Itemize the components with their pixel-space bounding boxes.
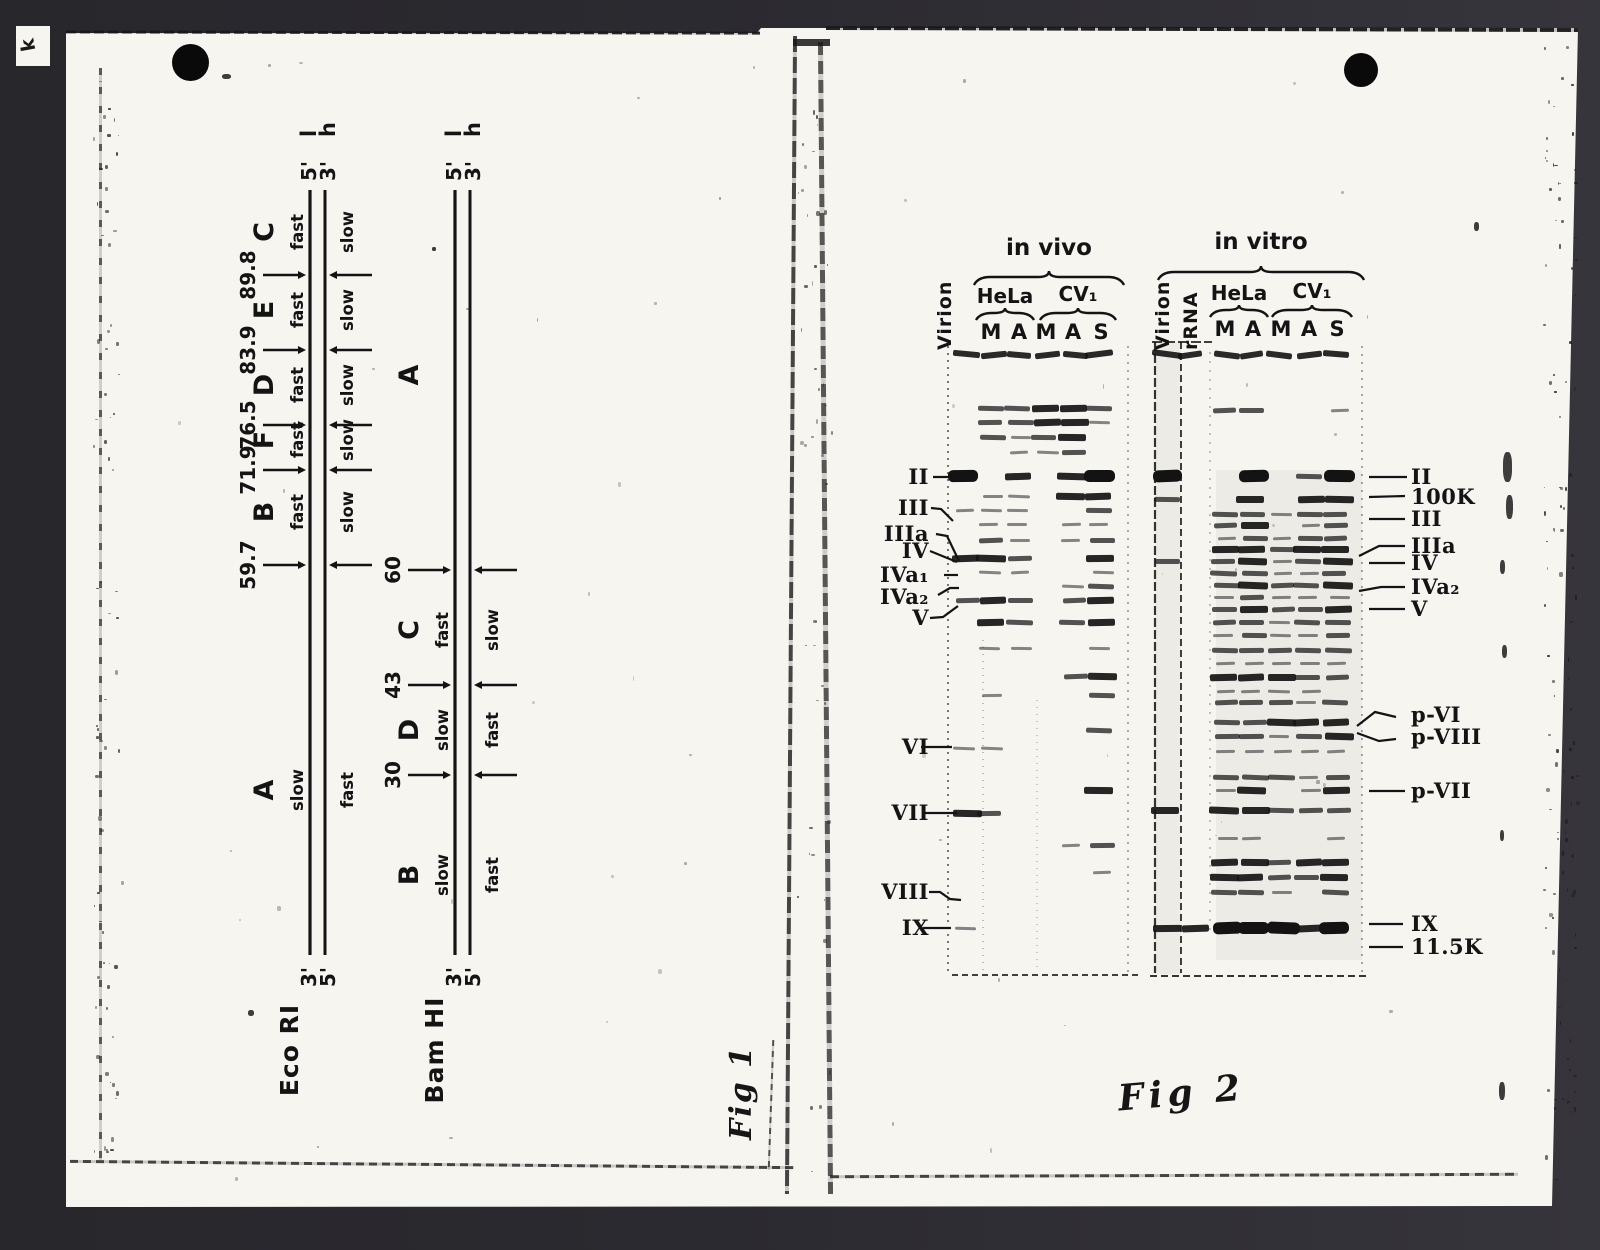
noise-speck xyxy=(825,483,828,485)
noise-speck xyxy=(1574,1091,1576,1092)
noise-speck xyxy=(1565,838,1568,842)
noise-speck xyxy=(1293,82,1296,85)
noise-speck xyxy=(818,388,820,391)
noise-speck xyxy=(105,1072,109,1076)
fragment-letter: B xyxy=(249,502,280,523)
noise-speck xyxy=(1565,487,1567,491)
noise-speck xyxy=(1574,182,1578,184)
strand-direction-label: fast xyxy=(288,422,307,458)
noise-speck xyxy=(816,700,819,701)
noise-speck xyxy=(892,1122,894,1126)
noise-speck xyxy=(1567,1102,1568,1104)
noise-speck xyxy=(93,137,95,141)
strand-direction-label: slow xyxy=(338,364,357,406)
noise-speck xyxy=(1341,191,1344,194)
fragment-letter: F xyxy=(249,431,280,449)
noise-speck xyxy=(1546,788,1549,793)
noise-speck xyxy=(100,829,103,831)
noise-speck xyxy=(104,746,107,750)
noise-speck xyxy=(811,1171,813,1172)
strand-direction-label: fast xyxy=(288,494,307,530)
ink-blotch xyxy=(1500,560,1505,574)
noise-speck xyxy=(1575,259,1579,261)
noise-speck xyxy=(1569,341,1572,345)
cut-position-number: 59.7 xyxy=(236,540,260,589)
noise-speck xyxy=(103,115,106,119)
noise-speck xyxy=(1559,183,1561,184)
noise-speck xyxy=(823,383,824,386)
noise-speck xyxy=(1556,749,1559,753)
noise-speck xyxy=(1571,267,1573,270)
noise-speck xyxy=(108,243,112,247)
noise-speck xyxy=(1559,416,1560,419)
ink-blotch xyxy=(1503,452,1512,482)
noise-speck xyxy=(98,816,102,821)
strand-direction-label: slow xyxy=(338,419,357,461)
cut-arrowhead-up xyxy=(329,346,337,354)
noise-speck xyxy=(963,79,966,83)
cut-arrowhead-down xyxy=(298,346,306,354)
noise-speck xyxy=(1544,47,1546,50)
strand-direction-label: slow xyxy=(433,709,452,751)
noise-speck xyxy=(813,110,815,115)
enzyme-label: Eco RI xyxy=(275,1004,304,1096)
noise-speck xyxy=(1367,315,1369,319)
ink-blotch xyxy=(1506,495,1513,519)
noise-speck xyxy=(804,444,807,447)
noise-speck xyxy=(814,265,817,268)
noise-speck xyxy=(1560,1021,1561,1025)
noise-speck xyxy=(1544,487,1545,488)
fragment-letter: D xyxy=(249,374,280,396)
noise-speck xyxy=(97,976,100,979)
noise-speck xyxy=(1561,220,1564,223)
fragment-letter: E xyxy=(249,301,280,319)
noise-speck xyxy=(106,1149,108,1151)
noise-speck xyxy=(449,1137,453,1140)
noise-speck xyxy=(104,393,107,396)
noise-speck xyxy=(1555,762,1558,767)
fragment-letter: A xyxy=(394,364,425,385)
noise-speck xyxy=(658,969,662,974)
noise-speck xyxy=(1571,776,1574,779)
noise-speck xyxy=(1571,554,1574,558)
noise-speck xyxy=(1571,894,1574,897)
strand-direction-label: fast xyxy=(483,857,502,893)
noise-speck xyxy=(1549,188,1552,191)
noise-speck xyxy=(105,187,108,191)
noise-speck xyxy=(116,1091,119,1096)
noise-speck xyxy=(1569,473,1572,477)
ink-blotch xyxy=(1499,1082,1505,1100)
cut-arrowhead-down xyxy=(443,566,451,574)
noise-speck xyxy=(809,827,813,830)
ink-blotch xyxy=(248,1010,254,1016)
noise-speck xyxy=(1571,84,1574,86)
noise-speck xyxy=(1215,835,1217,837)
noise-speck xyxy=(116,342,119,345)
noise-speck xyxy=(813,645,816,646)
noise-speck xyxy=(1570,708,1572,711)
end-label: 5' xyxy=(461,967,485,987)
cut-arrowhead-down xyxy=(298,561,306,569)
noise-speck xyxy=(107,985,110,989)
noise-speck xyxy=(1554,1107,1556,1110)
noise-speck xyxy=(1562,871,1564,875)
noise-speck xyxy=(1561,77,1564,79)
ecori-map: Eco RI3'5'5'3'lh59.771.976.583.989.8Aslo… xyxy=(236,122,372,1096)
noise-speck xyxy=(816,419,818,424)
noise-speck xyxy=(283,489,285,493)
noise-speck xyxy=(1569,1069,1571,1071)
noise-speck xyxy=(121,881,124,885)
noise-speck xyxy=(719,197,721,200)
cut-position-number: 43 xyxy=(381,671,405,699)
noise-speck xyxy=(1568,677,1571,679)
noise-speck xyxy=(1573,1075,1577,1077)
noise-speck xyxy=(814,368,817,370)
noise-speck xyxy=(1554,391,1557,392)
noise-speck xyxy=(105,210,108,213)
strand-name-label: h xyxy=(316,122,340,137)
noise-speck xyxy=(802,143,804,146)
cut-arrowhead-up xyxy=(474,771,482,779)
noise-speck xyxy=(922,753,926,758)
ink-blotch xyxy=(1500,830,1504,841)
noise-speck xyxy=(178,421,181,425)
figure-1-caption: Fig 1 xyxy=(724,1045,759,1140)
noise-speck xyxy=(110,324,112,328)
noise-speck xyxy=(1573,741,1575,745)
noise-speck xyxy=(96,736,99,740)
noise-speck xyxy=(1576,801,1580,805)
cut-arrowhead-down xyxy=(443,681,451,689)
noise-speck xyxy=(1575,933,1577,937)
noise-speck xyxy=(1546,150,1548,152)
noise-speck xyxy=(1567,1058,1569,1060)
cut-arrowhead-up xyxy=(329,466,337,474)
noise-speck xyxy=(1562,1098,1565,1100)
enzyme-label: Bam HI xyxy=(420,997,449,1104)
noise-speck xyxy=(102,931,104,934)
noise-speck xyxy=(112,1083,114,1087)
noise-speck xyxy=(1569,747,1570,751)
noise-speck xyxy=(114,965,117,969)
ink-blotch xyxy=(222,74,231,79)
strand-name-label: h xyxy=(461,122,485,137)
fragment-letter: D xyxy=(394,719,425,741)
noise-speck xyxy=(1562,851,1563,856)
noise-speck xyxy=(113,230,117,231)
noise-speck xyxy=(824,702,827,704)
punch-hole-left-icon xyxy=(172,44,209,81)
strand-direction-label: slow xyxy=(338,491,357,533)
noise-speck xyxy=(810,1106,813,1110)
page-edge-line xyxy=(793,39,830,46)
noise-speck xyxy=(1566,46,1569,49)
noise-speck xyxy=(1559,572,1563,576)
noise-speck xyxy=(637,97,640,100)
noise-speck xyxy=(821,685,823,687)
noise-speck xyxy=(998,978,1000,981)
cut-arrowhead-up xyxy=(474,681,482,689)
noise-speck xyxy=(684,862,688,864)
noise-speck xyxy=(829,1070,831,1075)
noise-speck xyxy=(1565,381,1567,383)
bamhi-map: Bam HI3'5'5'3'lh304360BslowfastDslowfast… xyxy=(381,122,517,1103)
noise-speck xyxy=(111,1137,114,1142)
cut-arrowhead-up xyxy=(474,566,482,574)
noise-speck xyxy=(96,1055,99,1059)
strand-direction-label: slow xyxy=(338,211,357,253)
cut-position-number: 60 xyxy=(381,556,405,584)
noise-speck xyxy=(1548,734,1551,736)
end-label: 5' xyxy=(316,967,340,987)
noise-speck xyxy=(1549,913,1553,916)
strand-direction-label: fast xyxy=(288,367,307,403)
noise-speck xyxy=(1574,947,1577,949)
fragment-letter: B xyxy=(394,865,425,886)
punch-hole-right-icon xyxy=(1344,53,1378,87)
cut-arrowhead-down xyxy=(298,271,306,279)
noise-speck xyxy=(1555,1179,1558,1181)
noise-speck xyxy=(99,168,103,170)
fragment-letter: A xyxy=(249,779,280,800)
noise-speck xyxy=(1574,1107,1577,1112)
noise-speck xyxy=(1574,169,1576,171)
noise-speck xyxy=(1571,854,1574,858)
noise-speck xyxy=(532,701,535,704)
noise-speck xyxy=(97,892,100,893)
noise-speck xyxy=(1547,655,1550,657)
noise-speck xyxy=(104,440,107,445)
strand-direction-label: fast xyxy=(338,772,357,808)
strand-direction-label: fast xyxy=(288,214,307,250)
corner-tab: k xyxy=(16,26,50,66)
scanned-document-page: k Eco RI3'5'5'3'lh59.771.976.583.989.8As… xyxy=(0,0,1600,1250)
noise-speck xyxy=(1575,294,1577,297)
end-label: 3' xyxy=(316,161,340,181)
noise-speck xyxy=(277,906,280,911)
end-label: 3' xyxy=(461,161,485,181)
noise-speck xyxy=(1567,888,1568,893)
noise-speck xyxy=(816,211,819,216)
noise-speck xyxy=(827,264,828,266)
cut-arrowhead-up xyxy=(329,271,337,279)
noise-speck xyxy=(1575,595,1577,600)
noise-speck xyxy=(1563,770,1565,773)
ink-blotch xyxy=(1474,222,1479,231)
noise-speck xyxy=(1570,621,1573,624)
noise-speck xyxy=(94,905,95,907)
figure-1-restriction-maps: Eco RI3'5'5'3'lh59.771.976.583.989.8Aslo… xyxy=(215,95,645,1105)
cut-position-number: 71.9 xyxy=(236,445,260,494)
strand-direction-label: slow xyxy=(288,769,307,811)
noise-speck xyxy=(1389,1010,1393,1013)
cut-arrowhead-up xyxy=(329,421,337,429)
noise-speck xyxy=(1571,1111,1572,1113)
noise-speck xyxy=(952,404,954,408)
cut-arrowhead-down xyxy=(443,771,451,779)
ink-blotch xyxy=(1502,645,1507,658)
noise-speck xyxy=(1574,237,1577,239)
cut-position-number: 89.8 xyxy=(236,250,260,299)
noise-speck xyxy=(1560,505,1562,508)
noise-speck xyxy=(1316,780,1319,784)
cut-position-number: 30 xyxy=(381,761,405,789)
figure-1-drawing: Eco RI3'5'5'3'lh59.771.976.583.989.8Aslo… xyxy=(215,95,645,1105)
noise-speck xyxy=(108,457,110,461)
noise-speck xyxy=(1559,968,1560,972)
noise-speck xyxy=(115,1098,117,1099)
noise-speck xyxy=(1565,819,1568,823)
noise-speck xyxy=(1566,979,1567,981)
noise-speck xyxy=(97,339,101,343)
noise-speck xyxy=(1555,220,1557,221)
noise-speck xyxy=(654,302,657,306)
noise-speck xyxy=(110,1082,111,1083)
noise-speck xyxy=(1246,383,1248,388)
noise-speck xyxy=(823,939,826,943)
noise-speck xyxy=(1571,802,1572,805)
noise-speck xyxy=(827,820,831,824)
noise-speck xyxy=(1552,680,1555,683)
strand-direction-label: slow xyxy=(338,289,357,331)
noise-speck xyxy=(1559,244,1560,249)
noise-speck xyxy=(1576,775,1579,777)
noise-speck xyxy=(618,482,621,487)
noise-speck xyxy=(113,413,115,415)
noise-speck xyxy=(811,854,815,856)
strand-direction-label: fast xyxy=(433,612,452,648)
noise-speck xyxy=(93,445,94,448)
noise-speck xyxy=(797,896,799,898)
noise-speck xyxy=(1565,830,1567,835)
noise-speck xyxy=(1554,1099,1557,1101)
noise-speck xyxy=(1574,387,1576,391)
noise-speck xyxy=(1572,567,1574,569)
noise-speck xyxy=(107,134,111,136)
noise-speck xyxy=(1558,1007,1561,1008)
noise-speck xyxy=(451,899,454,904)
ink-blotch xyxy=(432,247,436,251)
noise-speck xyxy=(1546,160,1547,162)
noise-speck xyxy=(1547,567,1548,570)
noise-speck xyxy=(812,281,814,285)
noise-speck xyxy=(106,1151,109,1153)
corner-mark: k xyxy=(16,37,40,53)
strand-direction-label: slow xyxy=(433,854,452,896)
noise-speck xyxy=(94,1150,95,1153)
noise-speck xyxy=(107,330,110,333)
fragment-letter: C xyxy=(249,222,280,242)
cut-arrowhead-down xyxy=(298,466,306,474)
noise-speck xyxy=(1568,657,1569,661)
noise-speck xyxy=(1569,847,1571,848)
noise-speck xyxy=(804,285,807,288)
cut-arrowhead-up xyxy=(329,561,337,569)
noise-speck xyxy=(114,118,115,122)
cut-position-number: 83.9 xyxy=(236,325,260,374)
strand-direction-label: fast xyxy=(483,712,502,748)
noise-speck xyxy=(466,308,469,311)
fragment-letter: C xyxy=(394,620,425,640)
noise-speck xyxy=(1570,1039,1572,1044)
noise-speck xyxy=(103,962,106,963)
noise-speck xyxy=(904,199,907,202)
strand-direction-label: fast xyxy=(288,292,307,328)
noise-speck xyxy=(1545,867,1546,869)
page-edge-line xyxy=(99,68,102,1160)
noise-speck xyxy=(1545,927,1548,929)
strand-direction-label: slow xyxy=(483,609,502,651)
noise-speck xyxy=(1546,541,1548,542)
